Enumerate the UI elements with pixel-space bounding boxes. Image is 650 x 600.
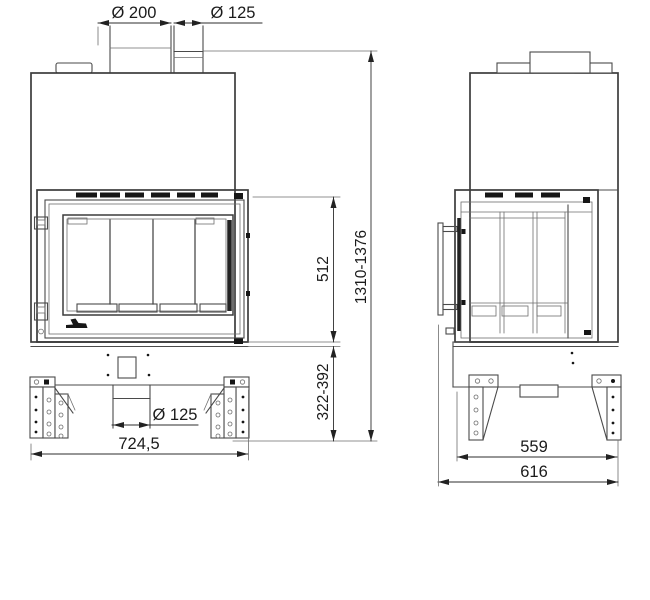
- air-pipe-collar-125: [174, 26, 203, 73]
- dim-height-1310-1376-label: 1310-1376: [353, 230, 370, 304]
- air-inlet: [118, 357, 136, 378]
- door-pin-lower: [246, 291, 250, 296]
- front-right-leg-bracket: [204, 377, 249, 438]
- side-body: [470, 73, 618, 342]
- door-handle: [66, 319, 88, 329]
- side-base-notch: [520, 385, 558, 397]
- side-latch-pin-top: [583, 197, 590, 203]
- front-view: [30, 26, 250, 438]
- dim-width-724-label: 724,5: [118, 435, 159, 453]
- side-latch-pin-bottom: [584, 330, 591, 335]
- side-top-collars: [497, 52, 612, 73]
- dim-pipe-125-top-label: Ø 125: [211, 4, 256, 22]
- side-firebox-interior: [461, 205, 592, 338]
- side-right-leg-bracket: [592, 375, 621, 440]
- dim-height-512-label: 512: [315, 256, 332, 282]
- dimension-annotations: Ø 200 Ø 125 512 322-392 1310-1376 Ø 125: [31, 4, 618, 486]
- vent-slots: [76, 193, 218, 198]
- latch-pin-bottom: [234, 338, 243, 344]
- firebox-window: [63, 215, 233, 315]
- damper-lever-housing: [56, 63, 92, 73]
- side-firebox-frame: [455, 190, 598, 342]
- flue-collar-200: [110, 26, 171, 73]
- side-view: [438, 52, 621, 440]
- side-left-leg-bracket: [469, 375, 498, 440]
- side-vent-slots: [485, 193, 560, 198]
- dim-depth-616-label: 616: [520, 463, 548, 481]
- technical-drawing-page: Ø 200 Ø 125 512 322-392 1310-1376 Ø 125: [0, 0, 650, 600]
- latch-pin-top: [234, 193, 243, 199]
- front-left-leg-bracket: [30, 377, 75, 438]
- front-body: [31, 73, 235, 342]
- dim-height-322-392-label: 322-392: [315, 364, 332, 421]
- door-pin-upper: [246, 233, 250, 238]
- drawing-canvas: Ø 200 Ø 125 512 322-392 1310-1376 Ø 125: [0, 0, 650, 600]
- dim-flue-200-label: Ø 200: [112, 4, 157, 22]
- firebox-front-panel: [37, 190, 248, 342]
- dim-depth-559-label: 559: [520, 438, 548, 456]
- dim-duct-125-bottom-label: Ø 125: [153, 406, 198, 424]
